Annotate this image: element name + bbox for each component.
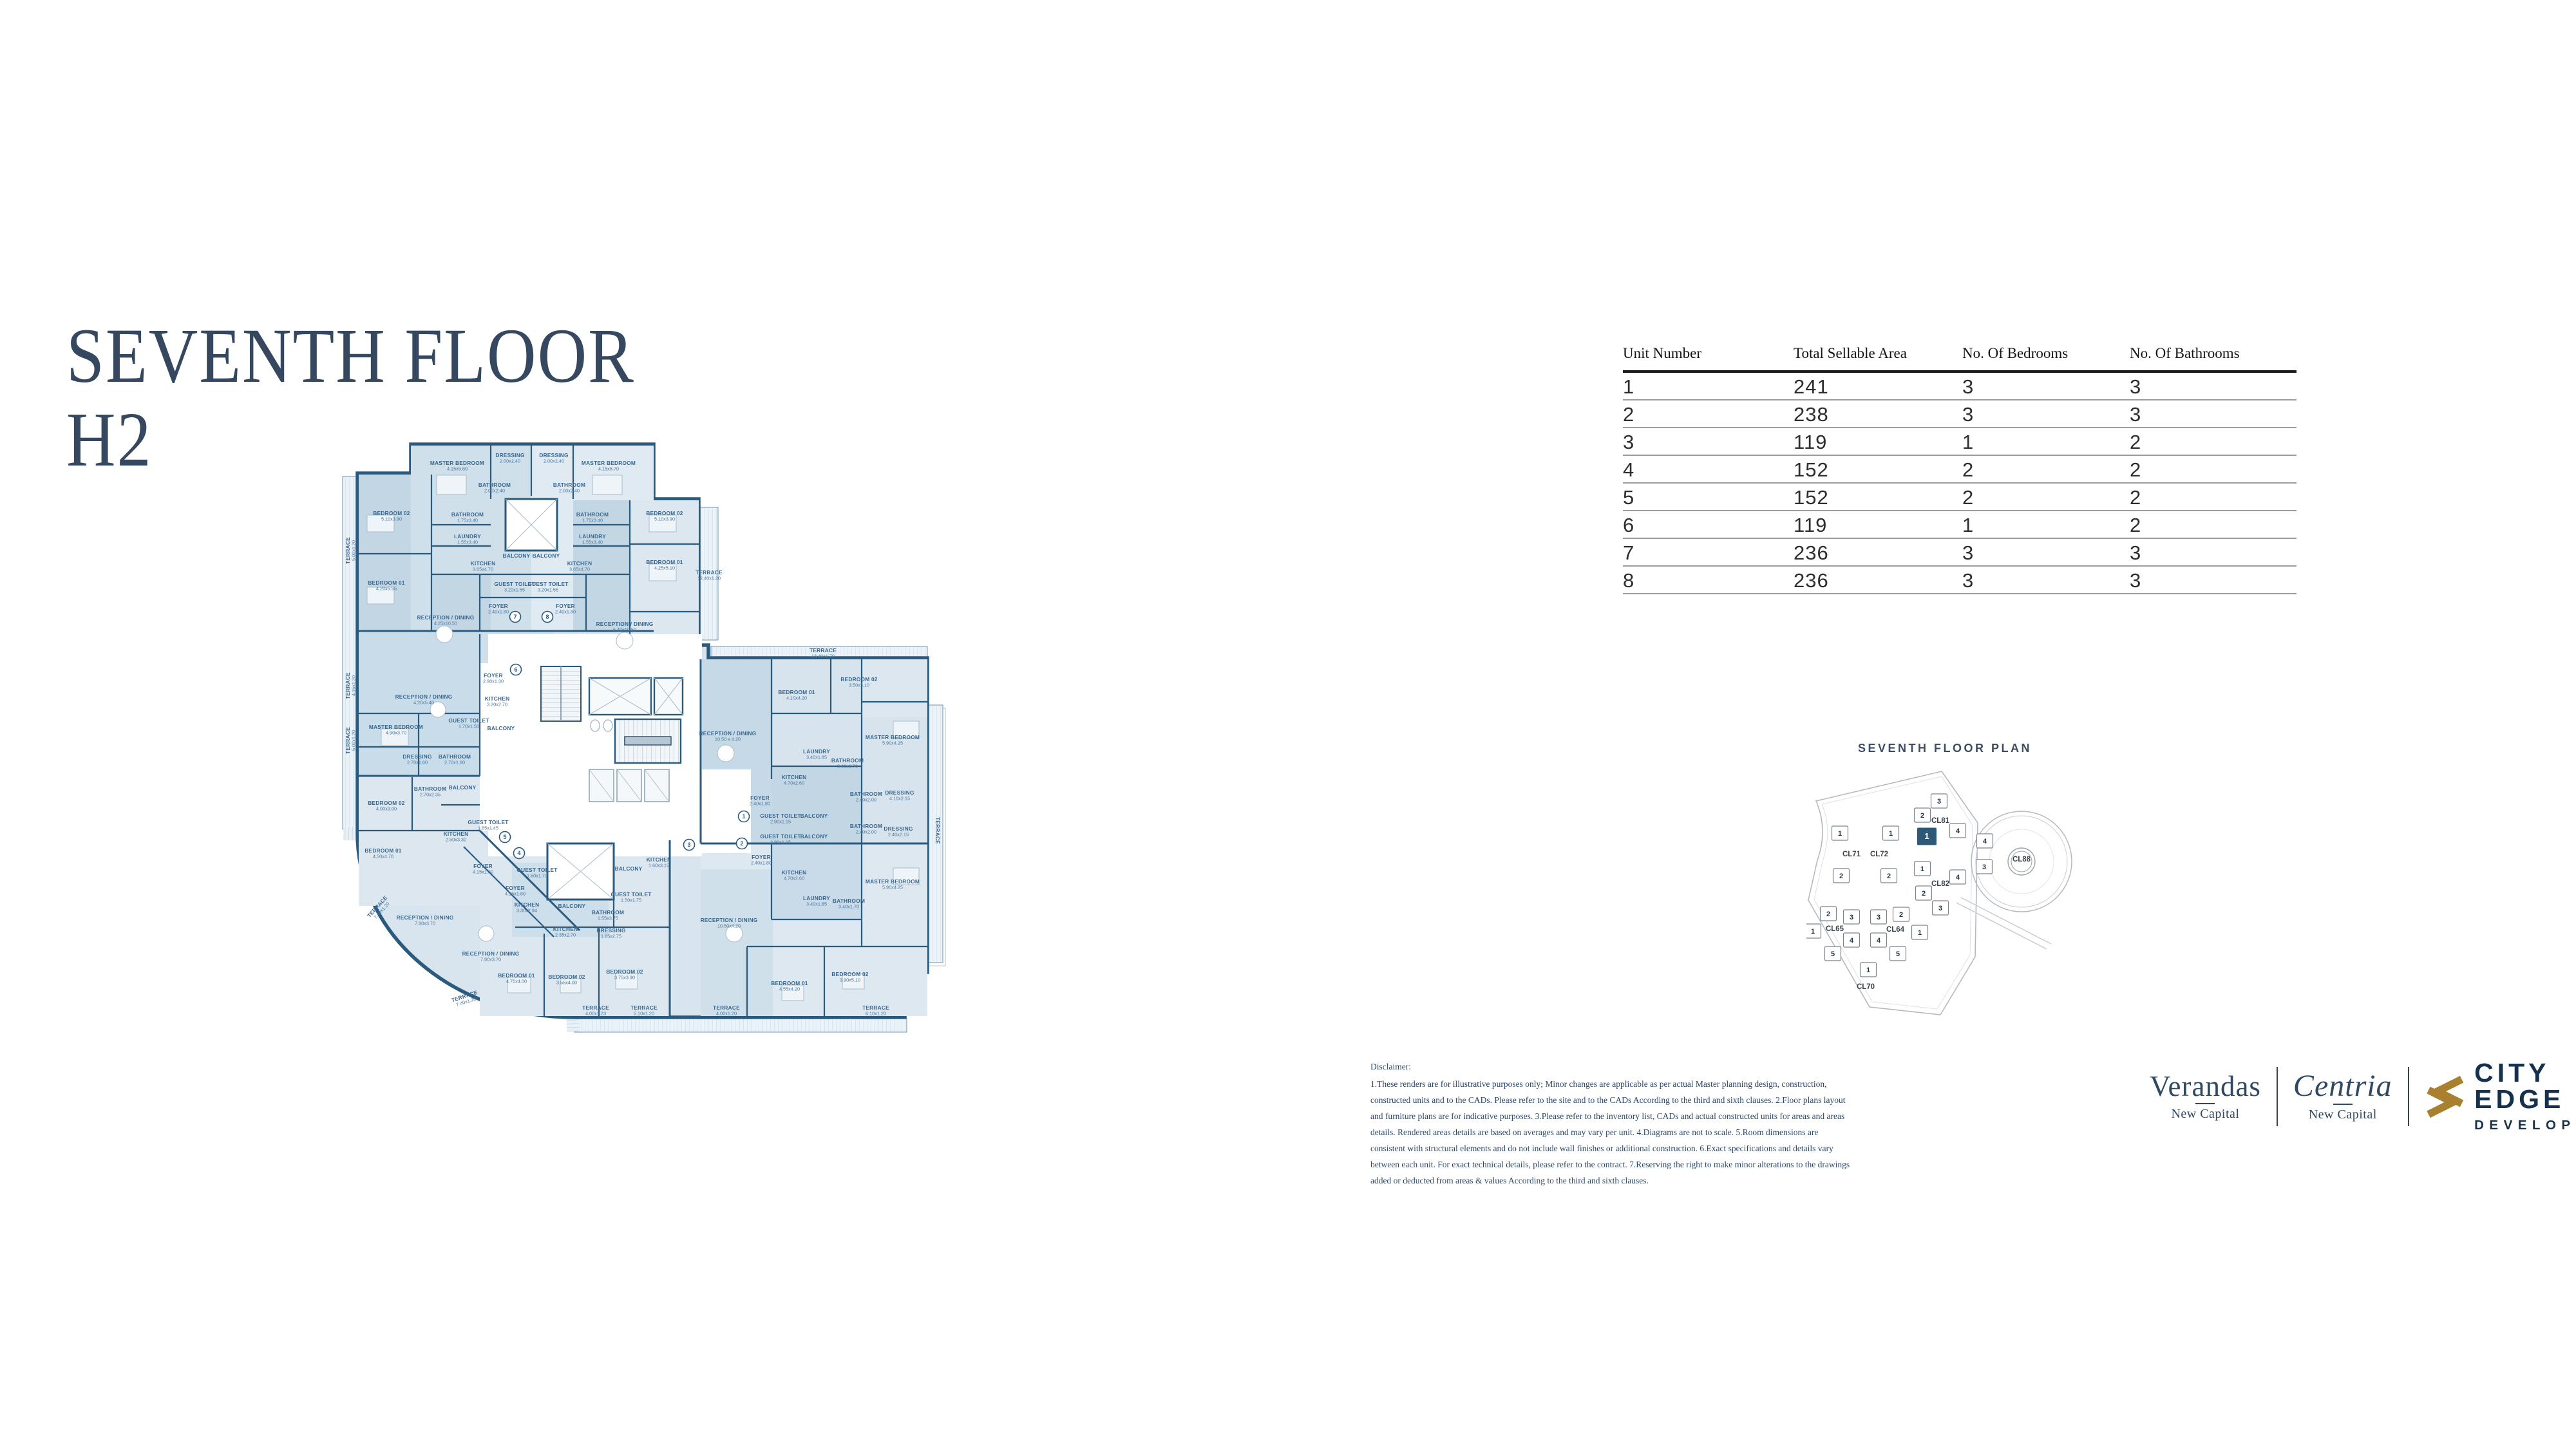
key-plan-unit-number: 1 [1838, 830, 1842, 838]
table-row: 515222 [1623, 484, 2297, 511]
verandas-wordmark: Verandas [2150, 1072, 2261, 1101]
disclaimer-body: 1.These renders are for illustrative pur… [1370, 1077, 1855, 1189]
entry-circle-number: 3 [687, 842, 690, 848]
room-label: BALCONY [800, 813, 828, 819]
room-label: TERRACE4.00x1.20 [713, 1004, 740, 1017]
entry-circle-number: 7 [513, 614, 516, 620]
table-cell: 3 [2130, 373, 2297, 399]
key-plan-unit-number: 3 [1937, 798, 1941, 805]
table-cell: 3 [1962, 373, 2130, 399]
room-label: BALCONY [558, 903, 586, 909]
key-plan-unit-number: 1 [1889, 830, 1893, 838]
room-label: TERRACE5.00x1.20 [345, 727, 357, 754]
table-row: 311912 [1623, 428, 2297, 456]
key-plan-unit-number: 2 [1899, 911, 1903, 919]
entry-circle-number: 6 [514, 666, 517, 673]
room-label: TERRACE [934, 817, 941, 844]
room-label: TERRACE7.40x1.20 [451, 989, 480, 1009]
centria-logo: Centria New Capital [2293, 1071, 2392, 1122]
table-cell: 1 [1962, 511, 2130, 538]
table-cell: 1 [1623, 373, 1794, 399]
key-plan-unit-number: 4 [1877, 937, 1881, 945]
logo-divider [2408, 1067, 2409, 1126]
key-plan-unit-number: 2 [1920, 812, 1924, 820]
key-plan-unit-number: 4 [1983, 838, 1987, 845]
table-cell: 241 [1794, 373, 1962, 399]
city-edge-weave-icon [2425, 1071, 2466, 1122]
room-label: DRESSING2.70x1.60 [402, 753, 431, 766]
table-cell: 3 [1623, 428, 1794, 455]
room-label: FOYER2.40x1.80 [751, 854, 772, 866]
table-header-bedrooms: No. Of Bedrooms [1962, 340, 2130, 370]
entry-circle-number: 8 [545, 614, 549, 620]
key-plan-unit-number: 4 [1956, 874, 1960, 881]
room-label: BALCONY [488, 725, 515, 731]
table-cell: 152 [1794, 484, 1962, 510]
room-label: TERRACE4.15x1.20 [345, 672, 357, 699]
room-label: TERRACE13.40x1.70 [810, 647, 837, 659]
table-header-sellable-area: Total Sellable Area [1794, 340, 1962, 370]
key-plan-cluster-label: CL72 [1870, 851, 1888, 858]
table-cell: 6 [1623, 511, 1794, 538]
key-plan-cluster-label: CL64 [1886, 926, 1905, 934]
key-plan-unit-number: 1 [1920, 865, 1924, 873]
centria-wordmark: Centria [2293, 1071, 2392, 1102]
table-cell: 236 [1794, 539, 1962, 565]
table-cell: 238 [1794, 400, 1962, 427]
entry-circle-number: 2 [740, 840, 743, 847]
room-label: TERRACE4.00x1.23 [582, 1004, 609, 1017]
entry-circle-number: 1 [742, 813, 745, 820]
disclaimer: Disclaimer: 1.These renders are for illu… [1370, 1059, 1855, 1189]
room-label: LAUNDRY3.40x1.85 [803, 895, 830, 907]
key-plan-unit-number: 3 [1850, 914, 1853, 921]
room-label: LAUNDRY1.55x3.40 [579, 533, 606, 545]
table-cell: 2 [1623, 400, 1794, 427]
unit-data-table: Unit Number Total Sellable Area No. Of B… [1623, 340, 2297, 594]
key-plan-drawing: 1212321412434321345342151 CL71CL72CL81CL… [1806, 764, 2083, 1034]
key-plan-cluster-label: CL82 [1931, 880, 1949, 888]
room-label: TERRACE5.10x1.20 [630, 1004, 658, 1017]
table-cell: 3 [1962, 400, 2130, 427]
key-plan-cluster-label: CL81 [1931, 817, 1950, 825]
room-label: KITCHEN4.70x2.60 [782, 869, 807, 881]
key-plan-unit-number: 1 [1811, 928, 1815, 936]
room-label: DRESSING1.65x2.75 [596, 927, 625, 939]
key-plan-cluster-label: CL65 [1826, 925, 1844, 933]
room-label: FOYER2.40x1.80 [555, 603, 576, 615]
key-plan-unit-number: 3 [1877, 914, 1880, 921]
city-edge-developments: DEVELOPMENTS [2474, 1118, 2576, 1133]
city-edge-text: CITY EDGE DEVELOPMENTS [2474, 1060, 2576, 1133]
room-label: KITCHEN3.65x4.70 [567, 560, 592, 572]
table-cell: 119 [1794, 511, 1962, 538]
room-label: KITCHEN1.60x3.15 [647, 856, 672, 869]
key-plan-unit-number: 5 [1896, 950, 1900, 958]
centria-rule [2333, 1104, 2353, 1105]
key-plan-unit-number: 2 [1839, 872, 1843, 880]
table-cell: 2 [1962, 456, 2130, 482]
entry-circle-number: 4 [517, 850, 520, 856]
table-row: 124133 [1623, 373, 2297, 400]
room-label: KITCHEN3.65x4.70 [471, 560, 496, 572]
key-plan-unit-number: 2 [1922, 890, 1926, 898]
key-plan-unit-number: 1 [1866, 966, 1870, 974]
room-label: BALCONY [615, 865, 643, 872]
entry-circle-number: 5 [503, 834, 506, 840]
verandas-logo: Verandas New Capital [2150, 1072, 2261, 1122]
table-cell: 2 [2130, 456, 2297, 482]
room-label: KITCHEN2.35x2.70 [553, 926, 578, 938]
table-cell: 3 [2130, 400, 2297, 427]
city-edge-name: CITY EDGE [2474, 1060, 2576, 1113]
table-cell: 3 [2130, 539, 2297, 565]
table-cell: 152 [1794, 456, 1962, 482]
room-label: BALCONY [503, 552, 531, 559]
table-cell: 7 [1623, 539, 1794, 565]
room-label: TERRACE12.40x1.20 [696, 569, 723, 581]
room-label: KITCHEN3.30x2.94 [515, 901, 540, 914]
key-plan-units: 1212321412434321345342151 [1806, 794, 1993, 977]
table-cell: 3 [1962, 567, 2130, 593]
room-label: DRESSING2.00x2.40 [495, 452, 524, 464]
key-plan-unit-number: 2 [1826, 910, 1830, 918]
key-plan-unit-number: 3 [1938, 905, 1942, 912]
table-row: 223833 [1623, 400, 2297, 428]
table-header-unit-number: Unit Number [1623, 340, 1794, 370]
page-title-line1: SEVENTH FLOOR [66, 314, 635, 398]
room-label: DRESSING2.00x2.40 [539, 452, 568, 464]
table-header-bathrooms: No. Of Bathrooms [2130, 340, 2297, 370]
key-plan-unit-number: 1 [1918, 929, 1922, 937]
room-label: FOYER2.40x1.80 [750, 795, 770, 807]
table-cell: 5 [1623, 484, 1794, 510]
room-label: LAUNDRY3.40x1.85 [803, 748, 830, 760]
room-label: LAUNDRY1.55x3.40 [454, 533, 481, 545]
table-cell: 3 [1962, 539, 2130, 565]
verandas-rule [2195, 1103, 2215, 1104]
table-row: 823633 [1623, 567, 2297, 594]
room-label: FOYER2.40x1.80 [488, 603, 509, 615]
table-cell: 1 [1962, 428, 2130, 455]
table-cell: 2 [2130, 484, 2297, 510]
key-plan-cluster-label: CL70 [1857, 983, 1875, 991]
centria-subtitle: New Capital [2309, 1107, 2377, 1122]
room-label: FOYER4.15x1.80 [473, 863, 493, 875]
table-cell: 3 [2130, 567, 2297, 593]
table-cell: 2 [1962, 484, 2130, 510]
table-header-row: Unit Number Total Sellable Area No. Of B… [1623, 340, 2297, 373]
room-label: DRESSING4.10x2.15 [885, 789, 914, 802]
room-label: BALCONY [449, 784, 477, 791]
key-plan-cluster-label: CL88 [2012, 856, 2031, 863]
key-plan-unit-number: 5 [1831, 950, 1835, 958]
room-label: DRESSING2.40x2.15 [884, 825, 913, 838]
key-plan-unit-number: 1 [1924, 831, 1929, 841]
key-plan-title: SEVENTH FLOOR PLAN [1806, 742, 2083, 755]
table-cell: 119 [1794, 428, 1962, 455]
table-cell: 236 [1794, 567, 1962, 593]
key-plan-unit-number: 4 [1956, 827, 1960, 835]
room-label: KITCHEN2.50x3.30 [444, 831, 469, 843]
table-cell: 4 [1623, 456, 1794, 482]
table-cell: 2 [2130, 511, 2297, 538]
table-row: 611912 [1623, 511, 2297, 539]
verandas-subtitle: New Capital [2171, 1107, 2239, 1122]
key-plan-unit-number: 2 [1887, 872, 1891, 880]
table-cell: 2 [2130, 428, 2297, 455]
brand-logos: Verandas New Capital Centria New Capital… [2150, 1061, 2576, 1132]
key-plan-unit-number: 3 [1982, 863, 1986, 871]
table-cell: 8 [1623, 567, 1794, 593]
room-label: BALCONY [533, 552, 560, 559]
room-label: KITCHEN3.20x2.70 [485, 695, 510, 708]
room-label: TERRACE6.10x1.20 [862, 1004, 889, 1017]
room-label: FOYER4.15x1.80 [505, 885, 526, 897]
room-label: KITCHEN4.70x2.60 [782, 774, 807, 786]
room-label: TERRACE5.00x1.20 [345, 537, 357, 564]
key-plan-cluster-label: CL71 [1842, 851, 1861, 858]
brochure-page: SEVENTH FLOOR H2 [0, 0, 2576, 1450]
key-plan-unit-number: 4 [1850, 937, 1854, 945]
room-label: FOYER2.90x1.30 [483, 672, 504, 684]
logo-divider [2277, 1067, 2278, 1126]
table-row: 415222 [1623, 456, 2297, 484]
disclaimer-title: Disclaimer: [1370, 1059, 1855, 1075]
table-row: 723633 [1623, 539, 2297, 567]
city-edge-logo: CITY EDGE DEVELOPMENTS [2425, 1060, 2576, 1133]
room-label: BALCONY [800, 833, 828, 840]
table-body: 1241332238333119124152225152226119127236… [1623, 373, 2297, 594]
floor-plan-drawing: MASTER BEDROOM4.15x5.80DRESSING2.00x2.40… [322, 419, 953, 1037]
